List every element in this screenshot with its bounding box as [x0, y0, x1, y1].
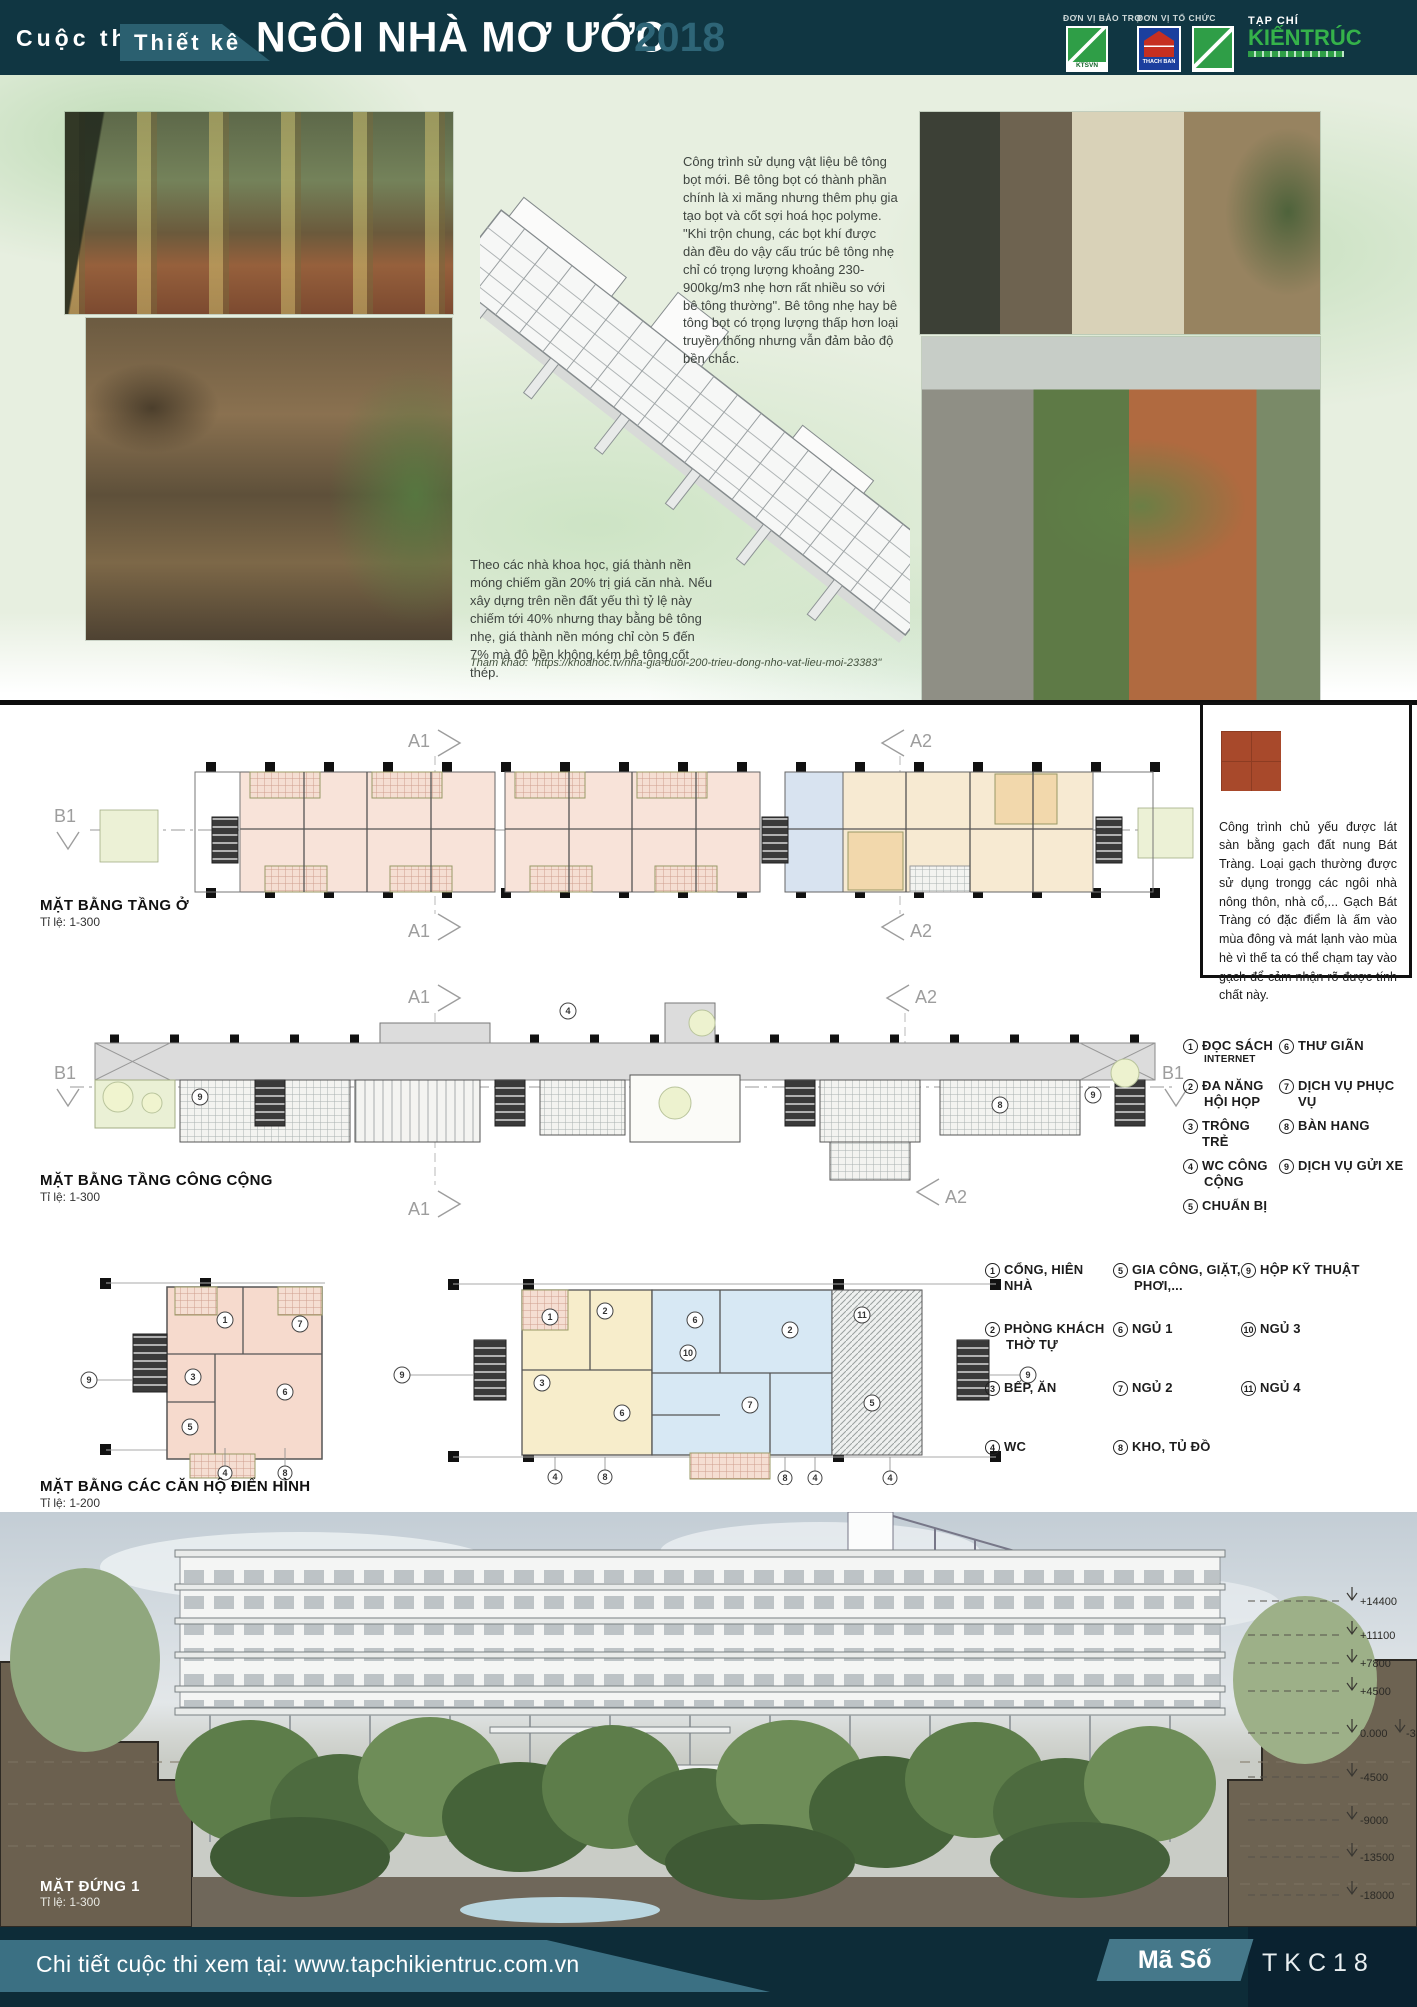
svg-text:+11100: +11100 [1360, 1630, 1395, 1642]
magazine-name: KIẾNTRÚC [1248, 27, 1362, 49]
svg-text:1: 1 [222, 1315, 227, 1325]
svg-text:8: 8 [782, 1473, 787, 1483]
legend-item: 1 CỔNG, HIÊN NHÀ [985, 1262, 1113, 1321]
svg-text:1: 1 [547, 1312, 552, 1322]
svg-text:3: 3 [190, 1372, 195, 1382]
magazine-url-bar [1248, 51, 1344, 57]
residential-floor-plan-drawing: A1 A2 B1 B1 A1 A2 [40, 722, 1200, 947]
svg-text:3: 3 [539, 1378, 544, 1388]
svg-text:9: 9 [197, 1092, 202, 1102]
legend-item: 5 CHUẨN BỊ [1183, 1198, 1279, 1238]
apartments-plan-scale: Tỉ lệ: 1-200 [40, 1496, 310, 1510]
grid-label-a1-top: A1 [408, 987, 430, 1007]
grid-label-a1-top: A1 [408, 731, 430, 751]
legend-item: 2 ĐA NĂNG HỘI HỌP [1183, 1078, 1279, 1118]
public-plan-title: MẶT BẰNG TẦNG CÔNG CỘNG [40, 1172, 273, 1189]
legend-item: 8 BÀN HANG [1279, 1118, 1415, 1158]
legend-item: 8 KHO, TỦ ĐỒ [1113, 1439, 1241, 1498]
code-label-badge: Mã Số [1097, 1939, 1254, 1981]
legend-number: 1 [1183, 1039, 1198, 1054]
legend-column: 1 CỔNG, HIÊN NHÀ 2 PHÒNG KHÁCH THỜ TỰ 3 … [985, 1262, 1113, 1498]
svg-text:2: 2 [602, 1306, 607, 1316]
legend-column: 6 THƯ GIÃN 7 DỊCH VỤ PHỤC VỤ 8 BÀN HANG … [1279, 1038, 1415, 1238]
legend-item: 9 HỘP KỸ THUẬT [1241, 1262, 1391, 1321]
svg-text:-4500: -4500 [1360, 1772, 1388, 1784]
svg-text:8: 8 [602, 1472, 607, 1482]
public-plan-label: MẶT BẰNG TẦNG CÔNG CỘNG Tỉ lệ: 1-300 [40, 1172, 273, 1204]
svg-text:6: 6 [619, 1408, 624, 1418]
legend-item: 7 NGỦ 2 [1113, 1380, 1241, 1439]
svg-text:5: 5 [869, 1398, 874, 1408]
svg-text:7: 7 [297, 1319, 302, 1329]
legend-item: 6 THƯ GIÃN [1279, 1038, 1415, 1078]
poster-title: NGÔI NHÀ MƠ ƯỚC [256, 13, 667, 62]
svg-text:-9000: -9000 [1360, 1815, 1388, 1827]
svg-text:5: 5 [187, 1422, 192, 1432]
sponsor-label: ĐƠN VỊ BẢO TRỢ [1063, 13, 1142, 23]
grid-label-a1-bottom: A1 [408, 1199, 430, 1219]
legend-item: 4 WC CÔNG CỘNG [1183, 1158, 1279, 1198]
grid-label-a2-bottom: A2 [910, 921, 932, 941]
thachban-logo: THACH BAN [1137, 26, 1181, 72]
intro-section: Công trình sử dụng vật liệu bê tông bọt … [0, 75, 1417, 700]
elevation-scale: Tỉ lệ: 1-300 [40, 1895, 140, 1909]
svg-text:9: 9 [86, 1375, 91, 1385]
svg-text:-13500: -13500 [1360, 1852, 1394, 1864]
svg-text:6: 6 [282, 1387, 287, 1397]
svg-text:11: 11 [857, 1310, 867, 1320]
svg-text:-30: -30 [1406, 1728, 1417, 1740]
residential-plan-title: MẶT BẰNG TẦNG Ở [40, 897, 189, 914]
legend-item: 5 GIA CÔNG, GIẶT, PHƠI,... [1113, 1262, 1241, 1321]
svg-text:4: 4 [812, 1473, 817, 1483]
grid-label-b1-right: B1 [1162, 1063, 1184, 1083]
ktsvn-logo-text: KTSVN [1068, 62, 1106, 70]
poster-year: 2018 [634, 14, 725, 61]
plans-section: Công trình chủ yếu được lát sàn bằng gạc… [0, 700, 1417, 1512]
ktsvn-logo-mark [1068, 28, 1106, 62]
svg-text:-18000: -18000 [1360, 1890, 1394, 1902]
apartment-plan-left-drawing: 9 1 7 3 5 6 4 8 [75, 1272, 345, 1482]
svg-text:9: 9 [1090, 1090, 1095, 1100]
svg-text:8: 8 [997, 1100, 1002, 1110]
thachban-house-icon [1144, 31, 1174, 57]
brick-note-box: Công trình chủ yếu được lát sàn bằng gạc… [1200, 702, 1412, 978]
public-plan-scale: Tỉ lệ: 1-300 [40, 1190, 273, 1204]
ktsvn-logo: KTSVN [1066, 26, 1108, 72]
interior-rendering-image [86, 318, 452, 640]
footer-bar: Chi tiết cuộc thi xem tại: www.tapchikie… [0, 1927, 1417, 2007]
legend-item: 9 DỊCH VỤ GỬI XE [1279, 1158, 1415, 1198]
code-label-text: Mã Số [1138, 1946, 1212, 1975]
legend-column: 1 ĐỌC SÁCH INTERNET 2 ĐA NĂNG HỘI HỌP 3 … [1183, 1038, 1279, 1238]
svg-text:4: 4 [552, 1472, 557, 1482]
grid-label-b1-left: B1 [54, 1063, 76, 1083]
svg-text:4: 4 [565, 1006, 570, 1016]
club-kts-logo [1192, 26, 1234, 72]
brick-note-text: Công trình chủ yếu được lát sàn bằng gạc… [1219, 818, 1397, 1006]
grid-label-a2-top: A2 [915, 987, 937, 1007]
svg-text:6: 6 [692, 1315, 697, 1325]
terrace-rendering-image [920, 112, 1320, 334]
legend-item: 7 DỊCH VỤ PHỤC VỤ [1279, 1078, 1415, 1118]
concrete-paragraph: Công trình sử dụng vật liệu bê tông bọt … [683, 153, 901, 368]
svg-text:9: 9 [399, 1370, 404, 1380]
apartment-legend: 1 CỔNG, HIÊN NHÀ 2 PHÒNG KHÁCH THỜ TỰ 3 … [985, 1262, 1415, 1498]
header-bar: Cuộc thi Thiết kế NGÔI NHÀ MƠ ƯỚC 2018 Đ… [0, 0, 1417, 75]
elevation-label: MẶT ĐỨNG 1 Tỉ lệ: 1-300 [40, 1878, 140, 1909]
grid-label-a2-top: A2 [910, 731, 932, 751]
legend-item: 4 WC [985, 1439, 1113, 1498]
grid-label-b1-left: B1 [54, 806, 76, 826]
svg-text:8: 8 [282, 1468, 287, 1478]
footer-details-text: Chi tiết cuộc thi xem tại: www.tapchikie… [36, 1951, 580, 1978]
public-floor-legend: 1 ĐỌC SÁCH INTERNET 2 ĐA NĂNG HỘI HỌP 3 … [1183, 1038, 1415, 1238]
svg-text:+14400: +14400 [1360, 1596, 1397, 1608]
elevation-drawing: +14400 +11100 +7800 +4500 0.000 -30 -450… [0, 1512, 1417, 1927]
club-kts-logo-mark [1194, 28, 1232, 68]
design-label: Thiết kế [120, 24, 270, 61]
reference-note: Tham khảo: "https://khoahoc.tv/nha-gia-d… [470, 656, 940, 671]
residential-plan-scale: Tỉ lệ: 1-300 [40, 915, 189, 929]
legend-column: 9 HỘP KỸ THUẬT 10 NGỦ 3 11 NGỦ 4 [1241, 1262, 1391, 1498]
svg-text:+7800: +7800 [1360, 1658, 1391, 1670]
organizer-label: ĐƠN VỊ TỔ CHỨC [1137, 13, 1216, 23]
apartment-plan-right-drawing: 9 9 1 2 3 6 6 10 7 2 11 5 4 8 8 4 4 [390, 1275, 1040, 1485]
legend-column: 5 GIA CÔNG, GIẶT, PHƠI,... 6 NGỦ 1 7 NGỦ… [1113, 1262, 1241, 1498]
elevation-section: +14400 +11100 +7800 +4500 0.000 -30 -450… [0, 1512, 1417, 1927]
svg-text:4: 4 [222, 1468, 227, 1478]
legend-item: 1 ĐỌC SÁCH INTERNET [1183, 1038, 1279, 1078]
svg-text:7: 7 [747, 1400, 752, 1410]
svg-text:4: 4 [887, 1473, 892, 1483]
thachban-logo-text: THACH BAN [1139, 59, 1179, 65]
legend-item: 2 PHÒNG KHÁCH THỜ TỰ [985, 1321, 1113, 1380]
elevation-title: MẶT ĐỨNG 1 [40, 1878, 140, 1895]
legend-item: 11 NGỦ 4 [1241, 1380, 1391, 1439]
svg-text:0.000: 0.000 [1360, 1728, 1388, 1740]
svg-text:10: 10 [683, 1348, 693, 1358]
apartments-plan-label: MẶT BẰNG CÁC CĂN HỘ ĐIỂN HÌNH Tỉ lệ: 1-2… [40, 1478, 310, 1510]
grid-label-a2-bottom: A2 [945, 1187, 967, 1207]
pond [460, 1897, 660, 1923]
legend-item: 3 TRÔNG TRẺ [1183, 1118, 1279, 1158]
legend-item: 6 NGỦ 1 [1113, 1321, 1241, 1380]
svg-text:2: 2 [787, 1325, 792, 1335]
rooftop-rendering-image [922, 337, 1320, 713]
magazine-logo: TẠP CHÍ KIẾNTRÚC [1248, 15, 1362, 57]
apartments-plan-title: MẶT BẰNG CÁC CĂN HỘ ĐIỂN HÌNH [40, 1478, 310, 1495]
entry-code: TKC18 [1262, 1949, 1375, 1978]
legend-item: 3 BẾP, ĂN [985, 1380, 1113, 1439]
poster-root: Cuộc thi Thiết kế NGÔI NHÀ MƠ ƯỚC 2018 Đ… [0, 0, 1417, 2007]
brick-tile-swatch [1221, 731, 1281, 791]
corridor-rendering-image [65, 112, 453, 314]
svg-text:+4500: +4500 [1360, 1686, 1391, 1698]
legend-item: 10 NGỦ 3 [1241, 1321, 1391, 1380]
grid-label-a1-bottom: A1 [408, 921, 430, 941]
residential-plan-label: MẶT BẰNG TẦNG Ở Tỉ lệ: 1-300 [40, 897, 189, 929]
